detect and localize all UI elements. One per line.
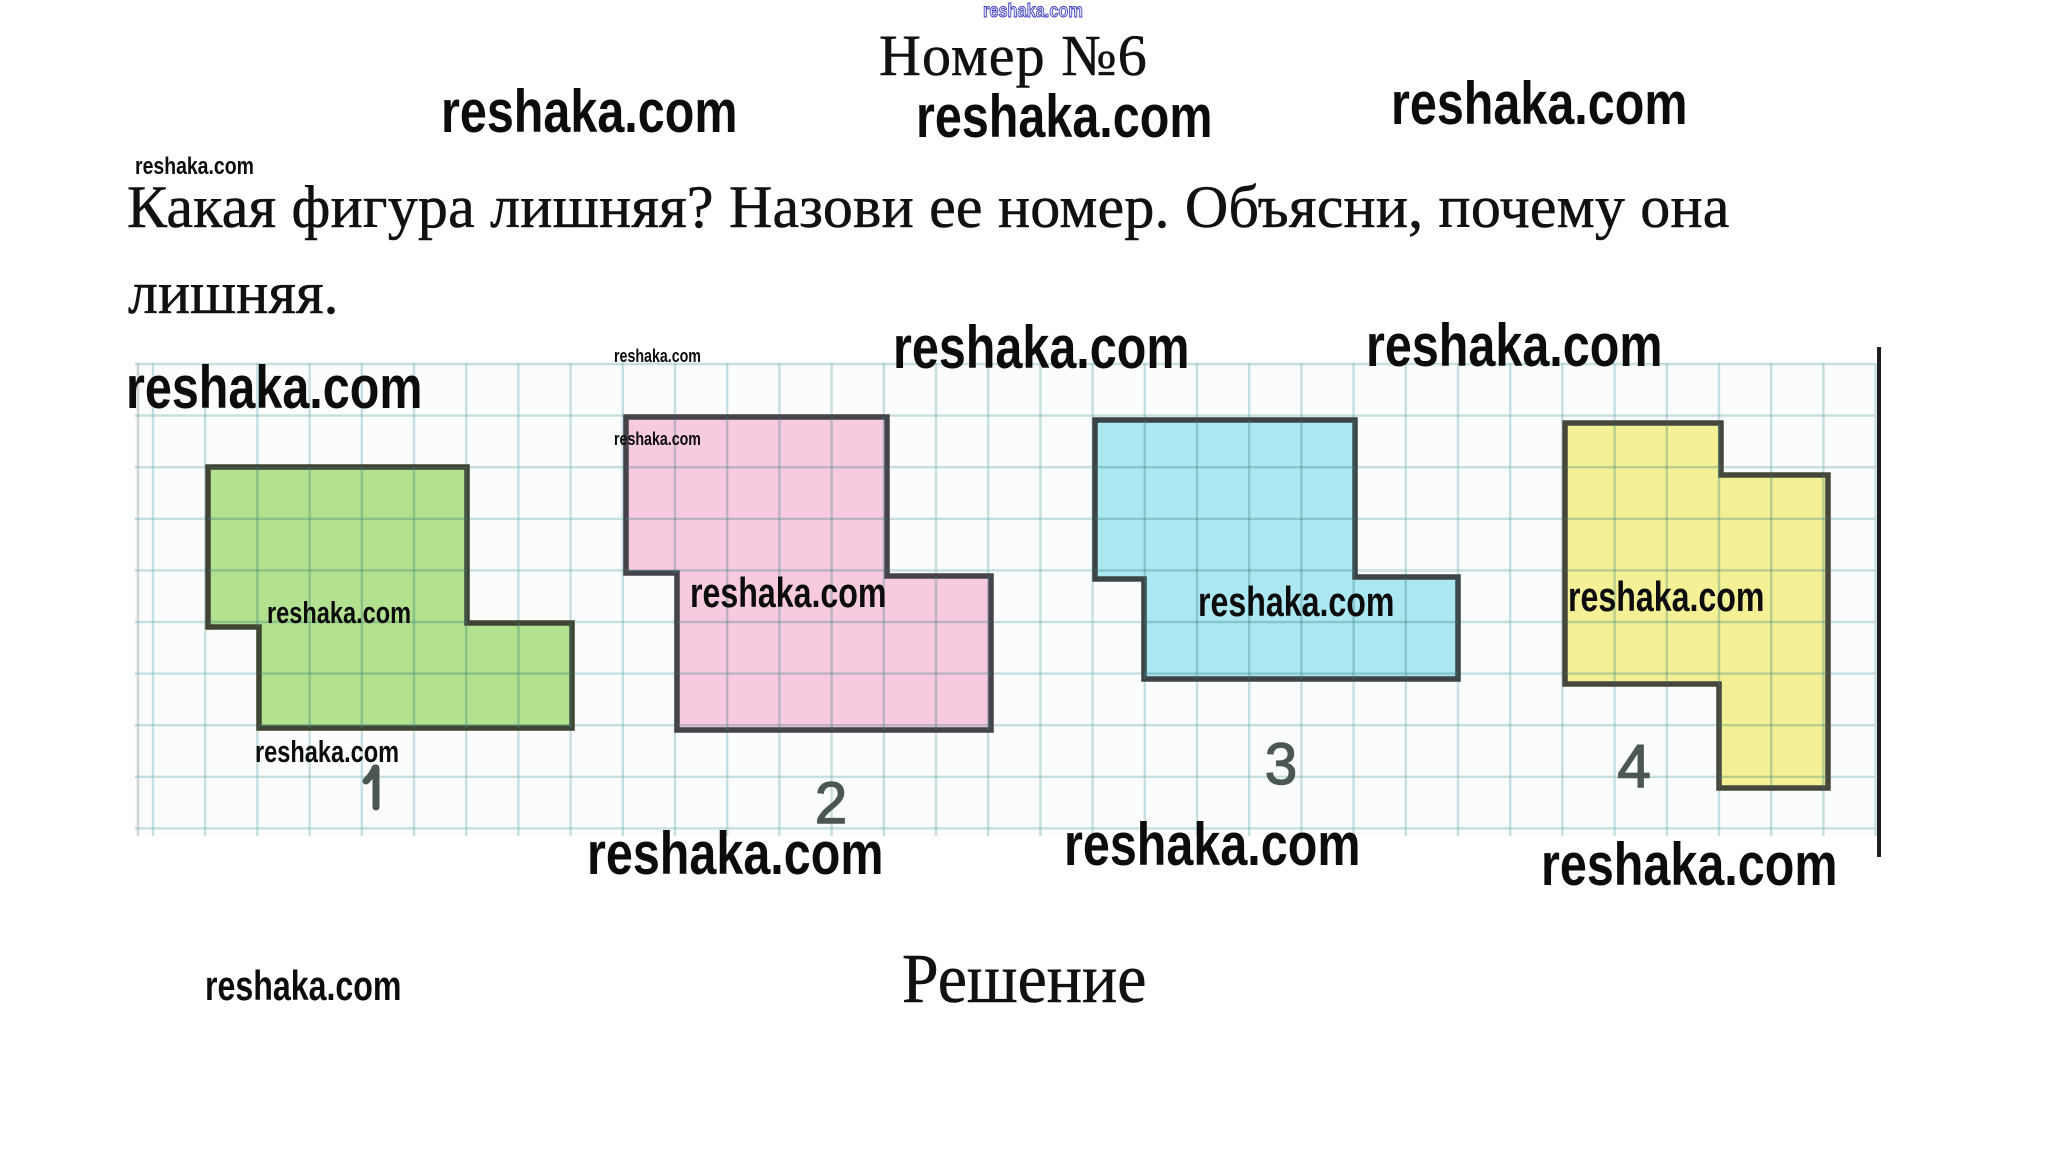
svg-text:4: 4 — [1617, 733, 1650, 800]
svg-text:3: 3 — [1265, 732, 1297, 797]
